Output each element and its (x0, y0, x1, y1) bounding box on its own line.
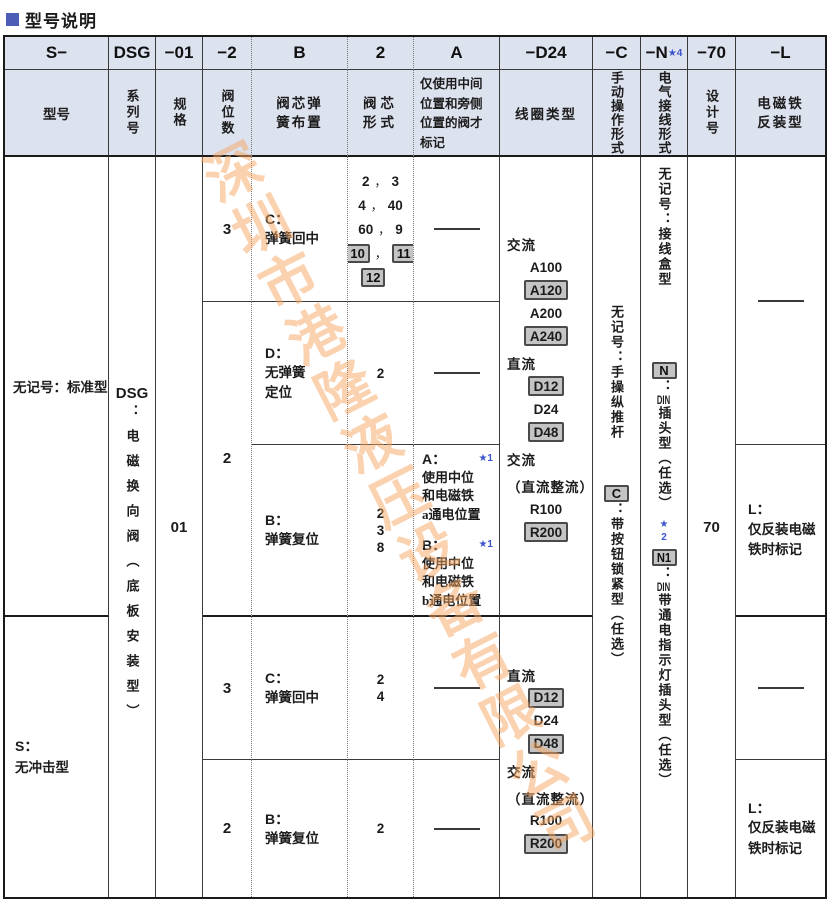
reverse-l-upper: L： 仅反装电磁 铁时标记 (736, 445, 825, 617)
note-text: b通电位置 (422, 592, 495, 611)
note-none-3 (414, 617, 500, 760)
model-shockless-code: S： (15, 736, 38, 757)
coil-option: A240 (524, 326, 568, 346)
header-code-electric: −N★4 (641, 37, 688, 70)
header-label-model: 型号 (5, 70, 109, 157)
positions-2-lower: 2 (203, 760, 252, 897)
coil-option: 直流 (507, 665, 536, 685)
coil-option: D12 (528, 376, 565, 396)
note-text: 和电磁铁 (422, 487, 495, 506)
label-text: 手动操作形式 (610, 71, 623, 155)
coil-option: 交流 (507, 234, 536, 254)
spool-number: 2 (377, 821, 385, 836)
section-title: 型号说明 (6, 7, 97, 32)
electric-n-description: 插头型（任选） (657, 406, 672, 511)
label-text: 标记 (420, 136, 445, 150)
series-description: ：电磁换向阀（底板安装型） (123, 404, 142, 729)
spool-forms-row5: 2 (348, 760, 414, 897)
model-standard-cell: 无记号：标准型 (5, 157, 109, 617)
manual-operation-text: 无记号：手操纵推杆C：带按钮锁紧型（任选） (610, 157, 623, 667)
header-code-spool: 2 (348, 37, 414, 70)
header-label-spring: 阀芯弹簧布置 (252, 70, 348, 157)
spring-name: 无弹簧 (265, 363, 306, 383)
manual-none-option: 无记号：手操纵推杆 (609, 305, 624, 440)
model-shockless-name: 无冲击型 (15, 757, 69, 778)
spool-number: 4 (377, 689, 385, 704)
note-text: 使用中位 (422, 555, 495, 574)
label-text: 型号 (43, 103, 70, 123)
electrical-connection-text: 无记号：接线盒型N：DIN插头型（任选）★2N1：DIN带通电指示灯插头型（任选… (658, 157, 671, 788)
coil-options-shockless: 直流D12D24D48交流（直流整流）R100R200 (500, 617, 593, 897)
reverse-l-lower: L： 仅反装电磁 铁时标记 (736, 760, 825, 897)
dash-no-marking (434, 828, 480, 830)
dash-no-marking (434, 687, 480, 689)
note-text: 使用中位 (422, 469, 495, 488)
coil-option: R200 (524, 522, 568, 542)
title-bullet-icon (6, 13, 19, 26)
electrical-connection-cell: 无记号：接线盒型N：DIN插头型（任选）★2N1：DIN带通电指示灯插头型（任选… (641, 157, 688, 897)
header-code-size: −01 (156, 37, 203, 70)
positions-2-upper: 2 (203, 302, 252, 617)
coil-option: （直流整流） (507, 476, 592, 496)
model-number-table: S− DSG −01 −2 B 2 A −D24 −C −N★4 −70 −L … (3, 35, 827, 899)
header-label-size: 规格 (156, 70, 203, 157)
manual-c-description: ：带按钮锁紧型（任选） (609, 502, 624, 667)
coil-option: D48 (528, 422, 565, 442)
header-label-electric: 电气接线形式 (641, 70, 688, 157)
manual-c-code-boxed: C (604, 485, 629, 502)
spool-number: 3 (377, 523, 385, 538)
coil-option: R100 (530, 499, 562, 519)
dash-no-marking (758, 300, 804, 302)
spool-number: 2 (377, 506, 385, 521)
spool-number: 2 (362, 174, 370, 189)
spring-code: C： (265, 209, 289, 229)
spring-c-upper: C： 弹簧回中 (252, 157, 348, 302)
colon: ： (657, 379, 672, 394)
label-text: 仅使用中间 (420, 77, 483, 91)
header-code-model: S− (5, 37, 109, 70)
dash-no-marking (434, 372, 480, 374)
spool-forms-row2: 2 (348, 302, 414, 445)
footnote-star-2: ★2 (659, 519, 670, 545)
positions-value: 2 (223, 450, 231, 467)
positions-value: 3 (223, 221, 231, 238)
footnote-star-4: ★4 (668, 48, 683, 59)
coil-option: R100 (530, 811, 562, 831)
spool-number-boxed: 10 (348, 244, 370, 263)
label-text: 线圈类型 (515, 103, 577, 123)
spring-b-upper: B： 弹簧复位 (252, 445, 348, 617)
spool-number: 2 (377, 366, 385, 381)
reverse-l-text: 铁时标记 (748, 540, 802, 561)
spool-number: 8 (377, 540, 385, 555)
header-code-reverse: −L (736, 37, 825, 70)
spool-number: 3 (392, 174, 400, 189)
label-text: 形式 (363, 113, 398, 132)
din-text: DIN (657, 581, 671, 593)
spool-number: 2 (377, 672, 385, 687)
header-label-design: 设计号 (688, 70, 736, 157)
spring-code: D： (265, 343, 289, 363)
coil-option: 交流 (507, 761, 536, 781)
dash-no-marking (434, 228, 480, 230)
coil-option: （直流整流） (507, 788, 592, 808)
catalog-page: 型号说明 S− DSG −01 −2 B 2 A −D24 −C −N★4 −7… (0, 0, 830, 909)
electric-none-option: 无记号：接线盒型 (657, 167, 672, 287)
spool-number-boxed: 12 (361, 268, 385, 287)
reverse-l-code: L： (748, 499, 771, 520)
label-text: 簧布置 (276, 113, 323, 132)
positions-3-upper: 3 (203, 157, 252, 302)
label-text: 阀芯弹 (276, 94, 323, 113)
label-text: 反装型 (757, 113, 804, 132)
spring-name: 定位 (265, 383, 292, 403)
header-code-manual: −C (593, 37, 641, 70)
header-code-series: DSG (109, 37, 156, 70)
label-text: 规格 (173, 97, 186, 129)
size-cell: 01 (156, 157, 203, 897)
design-number-cell: 70 (688, 157, 736, 897)
label-text: 位置的阀才 (420, 116, 483, 130)
header-label-note: 仅使用中间 位置和旁侧 位置的阀才 标记 (414, 70, 500, 157)
spring-name: 弹簧回中 (265, 229, 319, 249)
spring-b-lower: B： 弹簧复位 (252, 760, 348, 897)
coil-option: D12 (528, 688, 565, 708)
label-text: 设计号 (705, 89, 718, 137)
note-code-a: A： (422, 450, 446, 469)
header-code-positions: −2 (203, 37, 252, 70)
comma: ， (375, 245, 387, 262)
note-none-2 (414, 302, 500, 445)
electric-n1-description: 带通电指示灯插头型（任选） (657, 593, 672, 788)
dash-no-marking (758, 687, 804, 689)
note-text: 和电磁铁 (422, 573, 495, 592)
series-code: DSG (116, 385, 149, 402)
header-label-manual: 手动操作形式 (593, 70, 641, 157)
positions-3-lower: 3 (203, 617, 252, 760)
electric-code-text: −N (646, 43, 668, 63)
footnote-star-1: ★1 (478, 536, 495, 555)
header-label-coil: 线圈类型 (500, 70, 593, 157)
coil-option: D24 (534, 711, 559, 731)
spool-number-boxed: 11 (392, 244, 414, 263)
reverse-l-text: 仅反装电磁 (748, 818, 816, 839)
coil-option: 直流 (507, 353, 536, 373)
coil-options-standard: 交流A100A120A200A240直流D12D24D48交流（直流整流）R10… (500, 157, 593, 617)
positions-value: 3 (223, 680, 231, 697)
coil-option: D48 (528, 734, 565, 754)
spool-forms-row1: 2，3 4，40 60，9 10，11 12 (348, 157, 414, 302)
coil-option: 交流 (507, 449, 536, 469)
comma: ， (378, 221, 390, 238)
coil-option: R200 (524, 834, 568, 854)
comma: ， (374, 173, 386, 190)
label-text: 位置和旁侧 (420, 97, 483, 111)
header-code-design: −70 (688, 37, 736, 70)
reverse-l-text: 铁时标记 (748, 839, 802, 860)
coil-option: D24 (534, 399, 559, 419)
size-value: 01 (171, 519, 188, 536)
manual-operation-cell: 无记号：手操纵推杆C：带按钮锁紧型（任选） (593, 157, 641, 897)
note-ab-cell: A：★1 使用中位 和电磁铁 a通电位置 B：★1 使用中位 和电磁铁 b通电位… (414, 445, 500, 617)
spool-number: 4 (358, 198, 366, 213)
reverse-none-2 (736, 617, 825, 760)
footnote-star-1: ★1 (478, 450, 495, 469)
header-label-spool: 阀芯形式 (348, 70, 414, 157)
note-code-b: B： (422, 536, 446, 555)
label-text: 电气接线形式 (658, 71, 671, 155)
spool-forms-row3: 2 3 8 (348, 445, 414, 617)
spool-number: 60 (358, 222, 373, 237)
comma: ， (371, 197, 383, 214)
header-label-reverse: 电磁铁反装型 (736, 70, 825, 157)
spool-number: 9 (395, 222, 403, 237)
note-none-4 (414, 760, 500, 897)
reverse-l-text: 仅反装电磁 (748, 520, 816, 541)
series-cell: DSG ：电磁换向阀（底板安装型） (109, 157, 156, 897)
header-label-positions: 阀位数 (203, 70, 252, 157)
spring-name: 弹簧回中 (265, 688, 319, 708)
note-text: a通电位置 (422, 506, 495, 525)
reverse-none-1 (736, 157, 825, 445)
coil-option: A120 (524, 280, 568, 300)
header-label-series: 系列号 (109, 70, 156, 157)
reverse-l-code: L： (748, 798, 771, 819)
positions-value: 2 (223, 820, 231, 837)
coil-option: A100 (530, 257, 562, 277)
header-code-note: A (414, 37, 500, 70)
electric-n1-code-boxed: N1 (652, 549, 677, 566)
section-title-text: 型号说明 (25, 7, 97, 32)
spring-name: 弹簧复位 (265, 829, 319, 849)
label-text: 阀芯 (363, 94, 398, 113)
header-code-coil: −D24 (500, 37, 593, 70)
spring-code: C： (265, 668, 289, 688)
note-none-1 (414, 157, 500, 302)
label-text: 电磁铁 (757, 94, 804, 113)
colon: ： (657, 566, 672, 581)
spool-forms-row4: 2 4 (348, 617, 414, 760)
header-code-spring: B (252, 37, 348, 70)
spring-name: 弹簧复位 (265, 530, 319, 550)
spring-d-cell: D： 无弹簧 定位 (252, 302, 348, 445)
model-standard-text: 无记号：标准型 (13, 376, 108, 396)
label-text: 系列号 (126, 89, 139, 137)
electric-n-code-boxed: N (652, 362, 677, 379)
spring-code: B： (265, 510, 289, 530)
design-number-value: 70 (703, 519, 720, 536)
model-shockless-cell: S： 无冲击型 (5, 617, 109, 897)
coil-option: A200 (530, 303, 562, 323)
din-text: DIN (657, 394, 671, 406)
spool-number: 40 (388, 198, 403, 213)
spring-code: B： (265, 809, 289, 829)
spring-c-lower: C： 弹簧回中 (252, 617, 348, 760)
label-text: 阀位数 (221, 89, 234, 137)
